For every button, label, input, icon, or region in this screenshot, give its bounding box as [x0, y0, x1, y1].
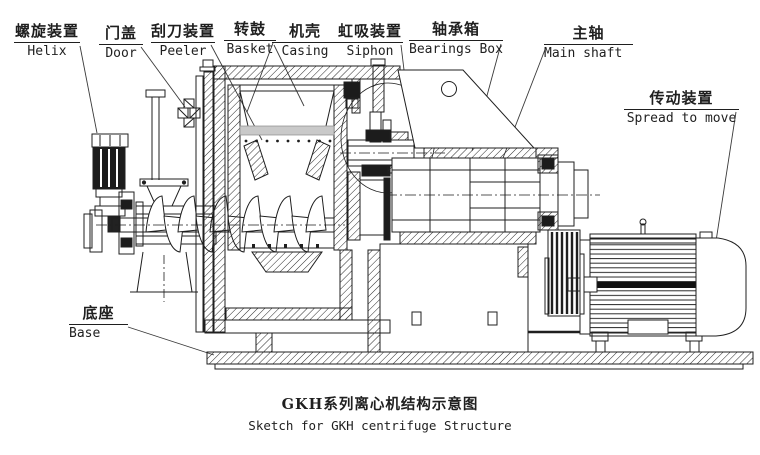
label-casing-zh: 机壳: [272, 24, 338, 43]
label-base-en: Base: [69, 325, 128, 340]
peeler-blade-right: [306, 140, 330, 180]
label-base: 底座 Base: [69, 306, 128, 340]
label-door-zh: 门盖: [99, 26, 143, 45]
label-helix-en: Helix: [14, 43, 80, 58]
caption-title-en: Sketch for GKH centrifuge Structure: [0, 418, 760, 433]
base-drawing: [207, 352, 753, 369]
label-casing-en: Casing: [272, 43, 338, 58]
label-basket-zh: 转鼓: [224, 22, 276, 41]
machine-drawing: [0, 0, 760, 455]
label-drive: 传动装置 Spread to move: [624, 91, 739, 125]
leader-helix: [80, 46, 97, 133]
label-peeler-en: Peeler: [151, 43, 215, 58]
label-peeler-zh: 刮刀装置: [151, 24, 215, 43]
motor-drawing: [568, 219, 746, 352]
discharge-chute: [252, 252, 322, 272]
label-bearings-box-zh: 轴承箱: [409, 22, 503, 41]
leader-base: [128, 327, 214, 355]
label-main-shaft: 主轴 Main shaft: [544, 26, 633, 60]
label-siphon: 虹吸装置 Siphon: [337, 24, 403, 58]
label-door-en: Door: [99, 45, 143, 60]
label-casing: 机壳 Casing: [272, 24, 338, 58]
label-peeler: 刮刀装置 Peeler: [151, 24, 215, 58]
label-bearings-box: 轴承箱 Bearings Box: [409, 22, 503, 56]
peeler-blade-left: [244, 140, 268, 180]
label-basket: 转鼓 Basket: [224, 22, 276, 56]
label-drive-en: Spread to move: [624, 110, 739, 125]
caption-title-zh: GKH系列离心机结构示意图: [0, 393, 760, 414]
label-main-shaft-zh: 主轴: [544, 26, 633, 45]
label-drive-zh: 传动装置: [624, 91, 739, 110]
door-drawing: [178, 60, 215, 332]
label-helix: 螺旋装置 Helix: [14, 24, 80, 58]
label-door: 门盖 Door: [99, 26, 143, 60]
label-siphon-zh: 虹吸装置: [337, 24, 403, 43]
caption: GKH系列离心机结构示意图 Sketch for GKH centrifuge …: [0, 393, 760, 433]
centrifuge-structure-diagram: 螺旋装置 Helix 门盖 Door 刮刀装置 Peeler 转鼓 Basket…: [0, 0, 760, 455]
label-helix-zh: 螺旋装置: [14, 24, 80, 43]
label-base-zh: 底座: [69, 306, 128, 325]
label-main-shaft-en: Main shaft: [544, 45, 633, 60]
label-bearings-box-en: Bearings Box: [409, 41, 503, 56]
label-basket-en: Basket: [224, 41, 276, 56]
label-siphon-en: Siphon: [337, 43, 403, 58]
